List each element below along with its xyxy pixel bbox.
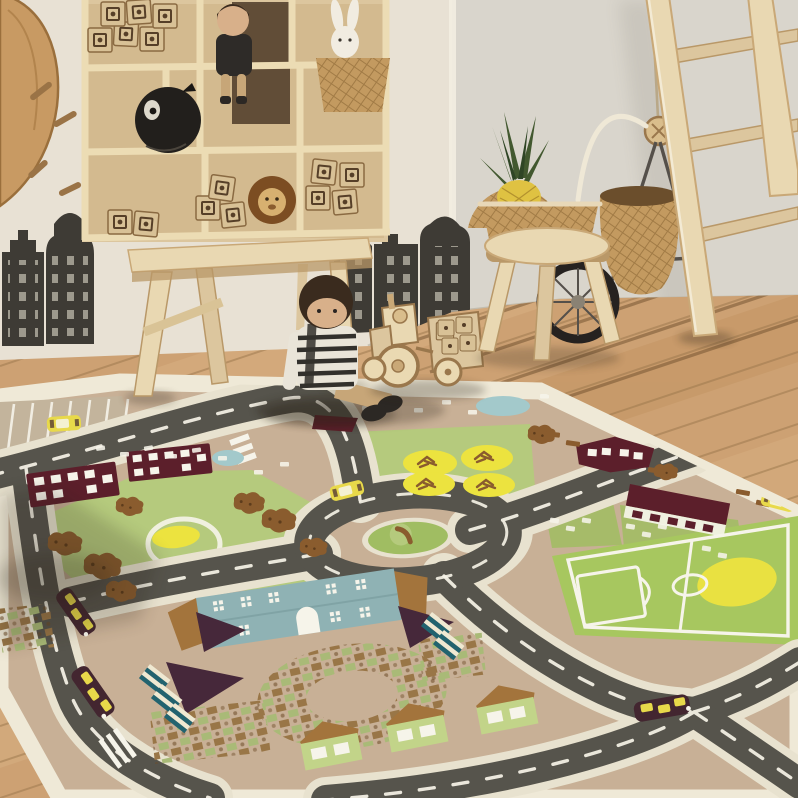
playroom-scene xyxy=(0,0,798,798)
playroom-photo xyxy=(0,0,798,798)
wall-shelf xyxy=(82,0,390,242)
lion-figurine xyxy=(248,176,296,224)
rug-pond xyxy=(476,396,530,416)
toy-blocks-stack xyxy=(88,0,177,52)
